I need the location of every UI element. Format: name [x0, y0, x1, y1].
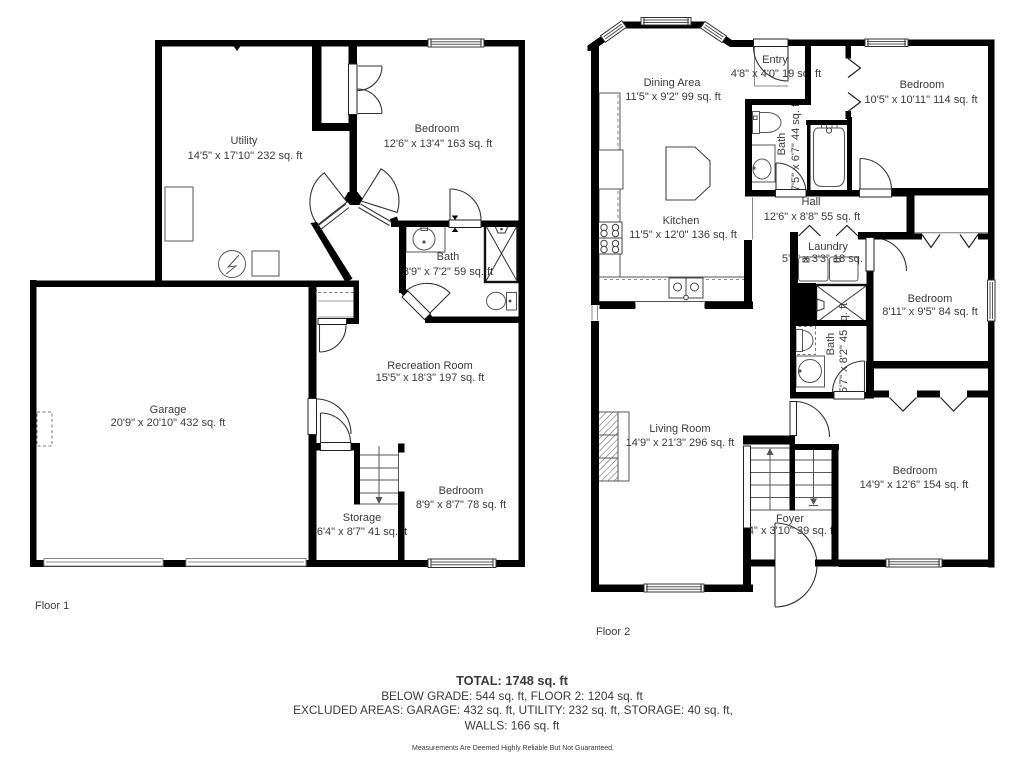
svg-text:14'5" x 17'10" 232 sq. ft: 14'5" x 17'10" 232 sq. ft — [188, 150, 303, 162]
svg-text:Foyer: Foyer — [776, 513, 804, 525]
svg-text:Bedroom: Bedroom — [908, 293, 953, 305]
svg-text:Dining Area: Dining Area — [644, 77, 702, 89]
svg-text:Bath: Bath — [776, 133, 788, 156]
svg-text:8'11" x 9'5" 84 sq. ft: 8'11" x 9'5" 84 sq. ft — [882, 306, 978, 318]
svg-text:20'9" x 20'10" 432 sq. ft: 20'9" x 20'10" 432 sq. ft — [111, 417, 226, 429]
svg-text:Bath: Bath — [437, 251, 460, 263]
svg-text:Bedroom: Bedroom — [439, 485, 484, 497]
svg-text:Garage: Garage — [150, 404, 187, 416]
svg-text:Entry: Entry — [762, 54, 788, 66]
svg-text:14'9" x 21'3" 296 sq. ft: 14'9" x 21'3" 296 sq. ft — [626, 437, 735, 449]
svg-text:6'4" x 8'7" 41 sq. ft: 6'4" x 8'7" 41 sq. ft — [317, 526, 407, 538]
svg-text:8'9" x 7'2" 59 sq. ft: 8'9" x 7'2" 59 sq. ft — [403, 266, 493, 278]
svg-text:Kitchen: Kitchen — [663, 215, 700, 227]
svg-text:15'5" x 18'3" 197 sq. ft: 15'5" x 18'3" 197 sq. ft — [376, 372, 485, 384]
svg-text:4" x 3'10" 39 sq. ft: 4" x 3'10" 39 sq. ft — [748, 525, 836, 537]
svg-text:7'5" x 6'7" 44 sq. ft: 7'5" x 6'7" 44 sq. ft — [790, 101, 802, 191]
svg-text:Utility: Utility — [231, 135, 258, 147]
svg-text:Bedroom: Bedroom — [893, 465, 938, 477]
svg-text:TOTAL: 1748 sq. ft: TOTAL: 1748 sq. ft — [456, 673, 569, 688]
svg-text:Floor 1: Floor 1 — [35, 600, 69, 612]
svg-text:11'5" x 12'0" 136 sq. ft: 11'5" x 12'0" 136 sq. ft — [629, 229, 737, 241]
svg-text:Bedroom: Bedroom — [415, 123, 460, 135]
svg-text:11'5" x 9'2" 99 sq. ft: 11'5" x 9'2" 99 sq. ft — [625, 91, 721, 103]
svg-text:Bedroom: Bedroom — [900, 79, 945, 91]
svg-text:10'5" x 10'11" 114 sq. ft: 10'5" x 10'11" 114 sq. ft — [864, 94, 977, 106]
svg-text:Living Room: Living Room — [649, 423, 710, 435]
svg-text:Recreation Room: Recreation Room — [387, 360, 473, 372]
svg-text:Hall: Hall — [802, 196, 821, 208]
svg-text:EXCLUDED AREAS: GARAGE: 432 sq: EXCLUDED AREAS: GARAGE: 432 sq. ft, UTIL… — [293, 703, 733, 717]
svg-text:12'6" x 13'4" 163 sq. ft: 12'6" x 13'4" 163 sq. ft — [384, 138, 493, 150]
svg-text:12'6" x 8'8" 55 sq. ft: 12'6" x 8'8" 55 sq. ft — [764, 211, 860, 223]
svg-text:Bath: Bath — [825, 333, 837, 356]
svg-text:5'7" x 8'2" 45 sq. ft: 5'7" x 8'2" 45 sq. ft — [838, 303, 850, 393]
svg-text:BELOW GRADE: 544 sq. ft, FLOOR: BELOW GRADE: 544 sq. ft, FLOOR 2: 1204 s… — [381, 689, 643, 703]
svg-text:Measurements Are Deemed Highly: Measurements Are Deemed Highly Reliable … — [412, 745, 614, 752]
svg-text:Laundry: Laundry — [808, 241, 848, 253]
svg-text:14'9" x 12'6" 154 sq. ft: 14'9" x 12'6" 154 sq. ft — [860, 479, 969, 491]
svg-text:Storage: Storage — [343, 512, 382, 524]
svg-text:Floor 2: Floor 2 — [596, 626, 630, 638]
svg-text:8'9" x 8'7" 78 sq. ft: 8'9" x 8'7" 78 sq. ft — [416, 499, 506, 511]
svg-text:WALLS: 166 sq. ft: WALLS: 166 sq. ft — [465, 719, 560, 733]
